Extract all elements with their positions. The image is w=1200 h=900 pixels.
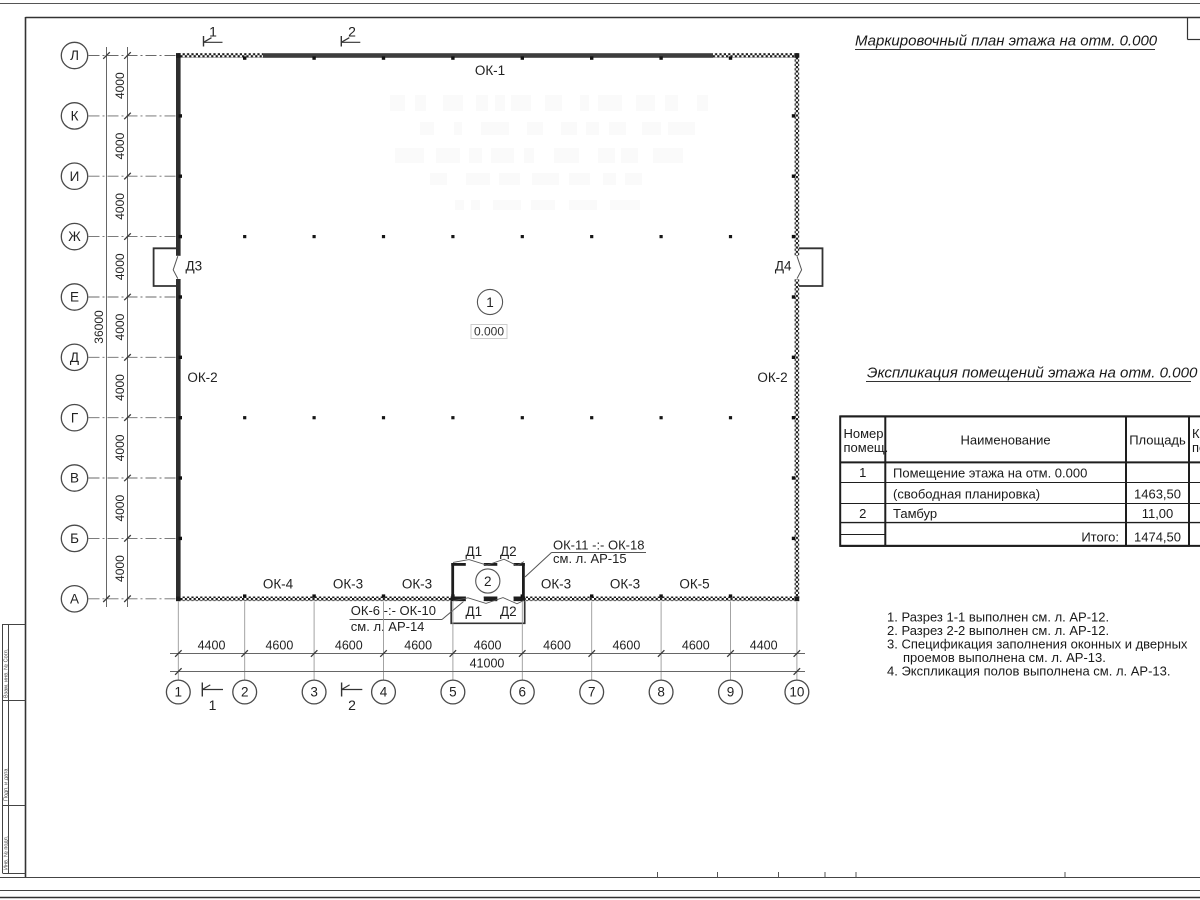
svg-text:1: 1 xyxy=(175,685,183,700)
svg-text:Д4: Д4 xyxy=(775,259,792,274)
svg-text:1: 1 xyxy=(209,697,217,713)
svg-text:ОК-3: ОК-3 xyxy=(402,577,432,592)
svg-text:6: 6 xyxy=(519,685,527,700)
svg-text:И: И xyxy=(70,169,80,184)
svg-text:помещ.: помещ. xyxy=(844,440,889,455)
svg-text:2: 2 xyxy=(348,697,356,713)
svg-text:Ка: Ка xyxy=(1192,426,1200,441)
svg-text:Д3: Д3 xyxy=(186,259,203,274)
svg-text:4000: 4000 xyxy=(113,495,127,522)
svg-text:Экспликация помещений этажа на: Экспликация помещений этажа на отм. 0.00… xyxy=(867,365,1198,382)
svg-text:ОК-3: ОК-3 xyxy=(541,577,571,592)
svg-text:36000: 36000 xyxy=(92,310,106,344)
svg-text:Д2: Д2 xyxy=(500,604,517,619)
svg-text:Д1: Д1 xyxy=(465,604,482,619)
svg-text:Д2: Д2 xyxy=(500,544,517,559)
svg-text:8: 8 xyxy=(657,685,665,700)
svg-text:7: 7 xyxy=(588,685,596,700)
svg-text:Помещение этажа на отм. 0.000: Помещение этажа на отм. 0.000 xyxy=(893,466,1087,481)
svg-text:4: 4 xyxy=(380,685,388,700)
svg-text:4400: 4400 xyxy=(198,639,226,653)
svg-text:4600: 4600 xyxy=(265,639,293,653)
svg-text:4. Экспликация полов выполнена: 4. Экспликация полов выполнена см. л. АР… xyxy=(887,664,1171,679)
svg-text:2: 2 xyxy=(241,685,249,700)
svg-text:3: 3 xyxy=(310,685,318,700)
svg-text:ОК-5: ОК-5 xyxy=(679,577,709,592)
svg-text:ОК-2: ОК-2 xyxy=(757,370,787,385)
svg-text:4000: 4000 xyxy=(113,193,127,220)
svg-text:4000: 4000 xyxy=(113,313,127,340)
svg-text:Г: Г xyxy=(71,410,79,425)
svg-text:Площадь: Площадь xyxy=(1129,433,1186,448)
svg-text:10: 10 xyxy=(789,685,804,700)
svg-text:ОК-3: ОК-3 xyxy=(610,577,640,592)
svg-text:(свободная планировка): (свободная планировка) xyxy=(893,487,1040,502)
svg-text:В: В xyxy=(70,471,79,486)
svg-text:1: 1 xyxy=(209,24,217,40)
svg-text:2: 2 xyxy=(348,24,356,40)
svg-text:4000: 4000 xyxy=(113,374,127,401)
svg-text:4600: 4600 xyxy=(474,639,502,653)
svg-text:Д1: Д1 xyxy=(465,544,482,559)
svg-text:см. л. АР-15: см. л. АР-15 xyxy=(553,551,627,566)
svg-text:ОК-3: ОК-3 xyxy=(333,577,363,592)
svg-text:11,00: 11,00 xyxy=(1142,506,1174,521)
svg-text:Л: Л xyxy=(70,48,79,63)
svg-text:4000: 4000 xyxy=(113,253,127,280)
svg-text:Наименование: Наименование xyxy=(961,433,1051,448)
svg-text:4000: 4000 xyxy=(113,72,127,99)
svg-text:4600: 4600 xyxy=(335,639,363,653)
svg-text:2: 2 xyxy=(484,574,492,589)
svg-text:0.000: 0.000 xyxy=(474,325,504,339)
svg-text:Ж: Ж xyxy=(68,229,81,244)
svg-text:4600: 4600 xyxy=(682,639,710,653)
svg-text:1: 1 xyxy=(859,465,866,480)
svg-text:по: по xyxy=(1192,440,1200,455)
svg-text:Д: Д xyxy=(70,350,79,365)
svg-text:5: 5 xyxy=(449,685,457,700)
svg-text:41000: 41000 xyxy=(470,657,505,671)
svg-text:Итого:: Итого: xyxy=(1081,530,1119,545)
svg-text:Номер: Номер xyxy=(844,426,884,441)
svg-text:ОК-1: ОК-1 xyxy=(475,63,505,78)
svg-text:см. л. АР-14: см. л. АР-14 xyxy=(351,619,425,634)
svg-text:4400: 4400 xyxy=(750,639,778,653)
svg-text:Инв. № подл.: Инв. № подл. xyxy=(4,835,10,870)
svg-text:4000: 4000 xyxy=(113,132,127,159)
svg-text:4600: 4600 xyxy=(404,639,432,653)
svg-text:А: А xyxy=(70,591,79,606)
svg-text:4000: 4000 xyxy=(113,434,127,461)
svg-text:4600: 4600 xyxy=(543,639,571,653)
svg-text:ОК-2: ОК-2 xyxy=(187,370,217,385)
svg-text:4000: 4000 xyxy=(113,555,127,582)
svg-text:1474,50: 1474,50 xyxy=(1134,530,1181,545)
svg-text:ОК-6 -:- ОК-10: ОК-6 -:- ОК-10 xyxy=(351,603,436,618)
svg-text:4600: 4600 xyxy=(612,639,640,653)
svg-text:Тамбур: Тамбур xyxy=(893,506,937,521)
svg-text:Подп. и дата: Подп. и дата xyxy=(4,768,10,801)
svg-text:К: К xyxy=(71,109,79,124)
svg-text:Б: Б xyxy=(70,531,79,546)
svg-text:9: 9 xyxy=(727,685,735,700)
svg-text:2: 2 xyxy=(859,506,866,521)
svg-text:Е: Е xyxy=(70,290,79,305)
svg-text:Взам. инв. № Согл.: Взам. инв. № Согл. xyxy=(4,648,10,698)
svg-text:1463,50: 1463,50 xyxy=(1134,487,1181,502)
svg-text:ОК-4: ОК-4 xyxy=(263,577,294,592)
svg-text:1: 1 xyxy=(486,295,494,310)
svg-text:Маркировочный план этажа на от: Маркировочный план этажа на отм. 0.000 xyxy=(855,33,1158,50)
